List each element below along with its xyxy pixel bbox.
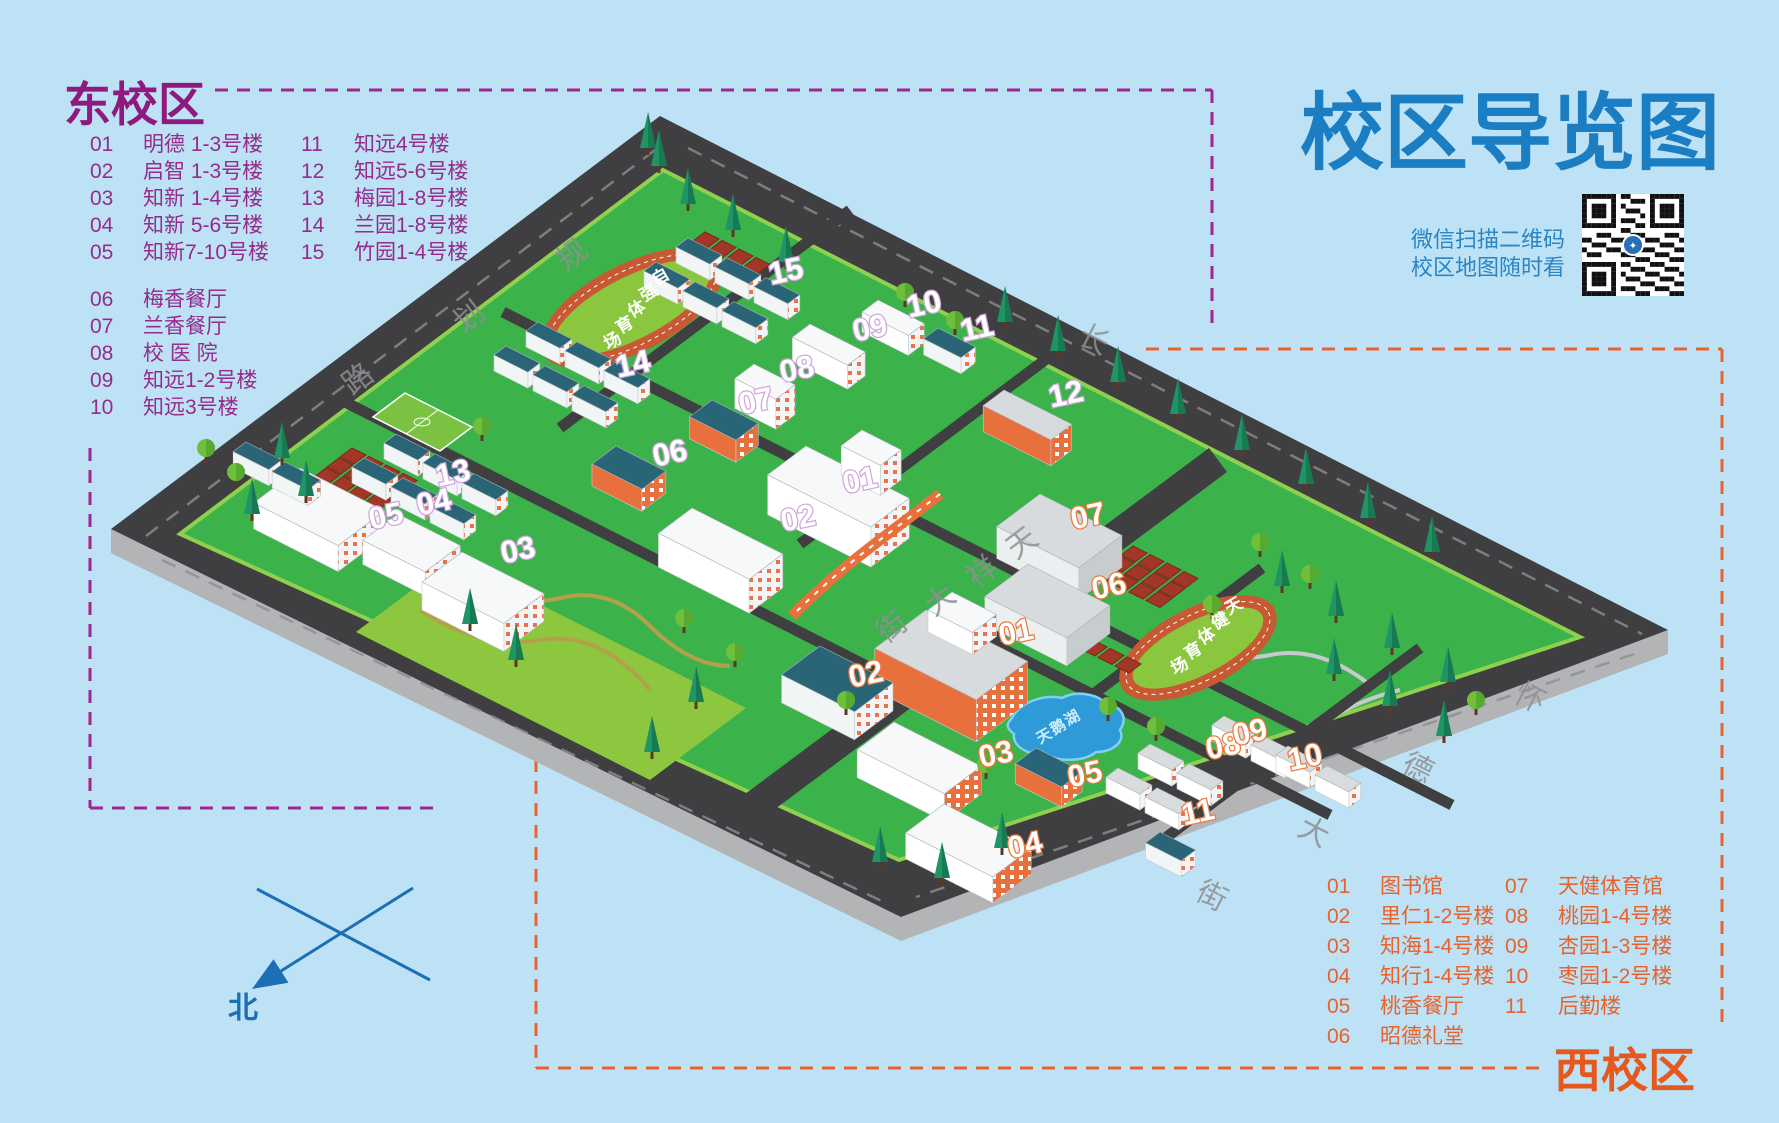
qr-instruction-line1: 微信扫描二维码 xyxy=(1395,226,1565,254)
building-number-marker: 13 xyxy=(432,452,473,493)
building-number-marker: 03 xyxy=(497,529,538,570)
building-number-marker: 01 xyxy=(995,611,1036,652)
building-number-marker: 15 xyxy=(765,250,806,291)
legend-item: 07兰香餐厅 xyxy=(90,313,269,340)
west-legend-column-1: 01图书馆02里仁1-2号楼03知海1-4号楼04知行1-4号楼05桃香餐厅06… xyxy=(1327,872,1494,1052)
building-number-marker: 05 xyxy=(1064,753,1105,794)
legend-item: 15竹园1-4号楼 xyxy=(301,239,468,266)
legend-item: 03知新 1-4号楼 xyxy=(90,185,269,212)
page-title: 校区导览图 xyxy=(1300,66,1680,187)
east-campus-legend-title: 东校区 xyxy=(64,66,205,135)
legend-item: 09杏园1-3号楼 xyxy=(1505,932,1672,962)
svg-text:✦: ✦ xyxy=(1629,241,1637,252)
building-number-marker: 10 xyxy=(1284,736,1325,777)
legend-item: 10枣园1-2号楼 xyxy=(1505,962,1672,992)
building-number-marker: 02 xyxy=(845,653,886,694)
building-number-marker: 07 xyxy=(1067,495,1108,536)
legend-item: 01图书馆 xyxy=(1327,872,1494,902)
building-number-marker: 09 xyxy=(849,307,890,348)
legend-item: 06梅香餐厅 xyxy=(90,286,269,313)
building-number-marker: 06 xyxy=(649,432,690,473)
building-number-marker: 10 xyxy=(903,283,944,324)
legend-item: 12知远5-6号楼 xyxy=(301,158,468,185)
north-label: 北 xyxy=(228,992,258,1025)
building-number-marker: 09 xyxy=(1229,711,1270,752)
building-number-marker: 05 xyxy=(365,495,406,536)
legend-item: 11知远4号楼 xyxy=(301,131,468,158)
building-number-marker: 12 xyxy=(1045,373,1086,414)
north-compass: 北 xyxy=(228,888,430,1025)
legend-item: 08桃园1-4号楼 xyxy=(1505,902,1672,932)
east-legend-column-1: 01明德 1-3号楼02启智 1-3号楼03知新 1-4号楼04知新 5-6号楼… xyxy=(90,131,269,421)
building-number-marker: 08 xyxy=(776,348,817,389)
building-number-marker: 07 xyxy=(735,380,776,421)
legend-item: 14兰园1-8号楼 xyxy=(301,212,468,239)
legend-item: 09知远1-2号楼 xyxy=(90,367,269,394)
legend-item: 02启智 1-3号楼 xyxy=(90,158,269,185)
legend-item: 05知新7-10号楼 xyxy=(90,239,269,266)
legend-item: 08校 医 院 xyxy=(90,340,269,367)
qr-instruction: 微信扫描二维码 校区地图随时看 xyxy=(1395,226,1565,282)
qr-instruction-line2: 校区地图随时看 xyxy=(1395,254,1565,282)
west-campus-legend-title: 西校区 xyxy=(1554,1032,1695,1101)
wechat-qr-code: ✦ xyxy=(1582,194,1684,296)
building-number-marker: 01 xyxy=(839,459,880,500)
west-legend-column-2: 07天健体育馆08桃园1-4号楼09杏园1-3号楼10枣园1-2号楼11后勤楼 xyxy=(1505,872,1672,1022)
east-legend-column-2: 11知远4号楼12知远5-6号楼13梅园1-8号楼14兰园1-8号楼15竹园1-… xyxy=(301,131,468,266)
legend-item: 10知远3号楼 xyxy=(90,394,269,421)
building-number-marker: 06 xyxy=(1088,565,1129,606)
legend-item: 01明德 1-3号楼 xyxy=(90,131,269,158)
road-name-char: 街 xyxy=(1191,875,1233,918)
legend-item: 11后勤楼 xyxy=(1505,992,1672,1022)
building-number-marker: 03 xyxy=(975,733,1016,774)
legend-item: 13梅园1-8号楼 xyxy=(301,185,468,212)
legend-item: 03知海1-4号楼 xyxy=(1327,932,1494,962)
north-arrowhead xyxy=(252,959,289,989)
legend-item: 02里仁1-2号楼 xyxy=(1327,902,1494,932)
legend-item: 04知新 5-6号楼 xyxy=(90,212,269,239)
campus-guide-poster: 规划路长怀德大街天祥大街 自强体育场天健体育场 天鹅湖 010203040506… xyxy=(0,0,1779,1123)
legend-item: 04知行1-4号楼 xyxy=(1327,962,1494,992)
legend-item: 05桃香餐厅 xyxy=(1327,992,1494,1022)
legend-item: 07天健体育馆 xyxy=(1505,872,1672,902)
building-number-marker: 02 xyxy=(777,497,818,538)
legend-item: 06昭德礼堂 xyxy=(1327,1022,1494,1052)
